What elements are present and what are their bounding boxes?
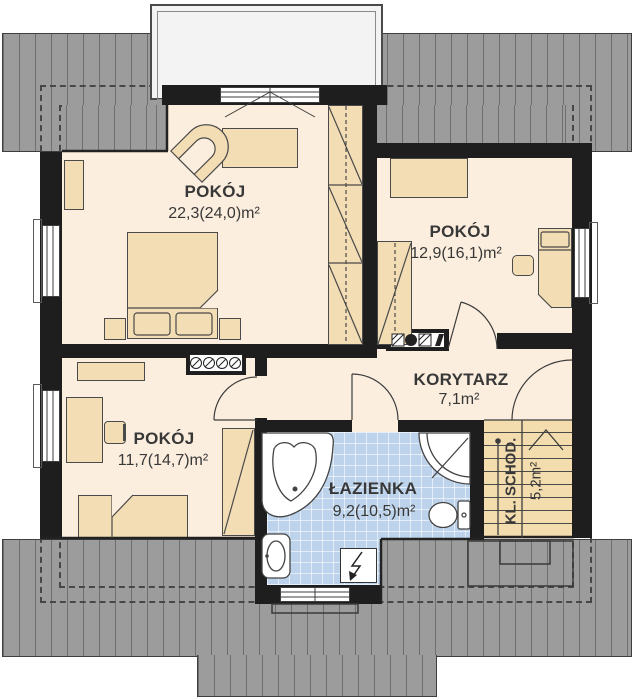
chair-icon (104, 421, 126, 444)
door-opening-bedroom3 (255, 376, 267, 418)
wall-bedrooms-divider (363, 105, 377, 349)
window-icon (42, 225, 60, 297)
wardrobe-icon (328, 105, 363, 345)
room-label-corridor: KORYTARZ (414, 370, 509, 390)
bed-icon (127, 232, 218, 339)
room-label-bedroom-1: POKÓJ (184, 182, 245, 202)
room-area-bedroom-3: 11,7(14,7)m² (118, 452, 208, 470)
roof-lower-extension (197, 655, 437, 697)
roof-slope-patch-bedroom1 (62, 105, 168, 152)
wardrobe-icon (222, 428, 255, 536)
desk-icon (66, 397, 103, 463)
balcony-window-icon (220, 87, 320, 103)
wardrobe-icon (377, 241, 412, 345)
desk-icon (222, 128, 298, 168)
wall-left (40, 152, 62, 538)
window-sill (33, 384, 42, 468)
wall-top-right (375, 143, 592, 158)
dresser-icon (77, 362, 145, 381)
electric-point-box (340, 548, 377, 583)
roof-slope-patch-bedroom2 (377, 105, 572, 143)
room-label-bathroom: ŁAZIENKA (329, 479, 417, 499)
room-area-bedroom-1: 22,3(24,0)m² (168, 205, 260, 223)
door-opening-bathroom (352, 420, 398, 432)
door-opening-bedroom2 (448, 333, 497, 349)
shelf-icon (64, 160, 84, 210)
room-area-corridor: 7,1m² (439, 391, 480, 409)
window-sill (589, 222, 598, 304)
dresser-icon (390, 158, 468, 198)
room-label-staircase: KL. SCHOD. (503, 438, 520, 525)
nightstand-icon (512, 255, 534, 276)
bed-icon (78, 495, 188, 538)
bed-icon (538, 228, 572, 308)
room-area-bathroom: 9,2(10,5)m² (333, 503, 416, 521)
window-icon (42, 390, 60, 462)
room-label-bedroom-2: POKÓJ (429, 222, 490, 242)
nightstand-icon (219, 318, 241, 340)
wall-bathroom-left (255, 432, 267, 604)
chimney-flue-inset (189, 354, 243, 372)
room-area-bedroom-2: 12,9(16,1)m² (410, 245, 502, 263)
nightstand-icon (104, 318, 126, 340)
room-area-staircase: 5,2m² (528, 462, 545, 500)
wall-stairs-left (470, 420, 484, 538)
window-icon (574, 228, 590, 298)
window-sill (33, 219, 42, 303)
floor-plan: POKÓJ 22,3(24,0)m² POKÓJ 12,9(16,1)m² PO… (0, 0, 634, 698)
bathroom-window-icon (280, 587, 350, 602)
room-label-bedroom-3: POKÓJ (133, 429, 194, 449)
